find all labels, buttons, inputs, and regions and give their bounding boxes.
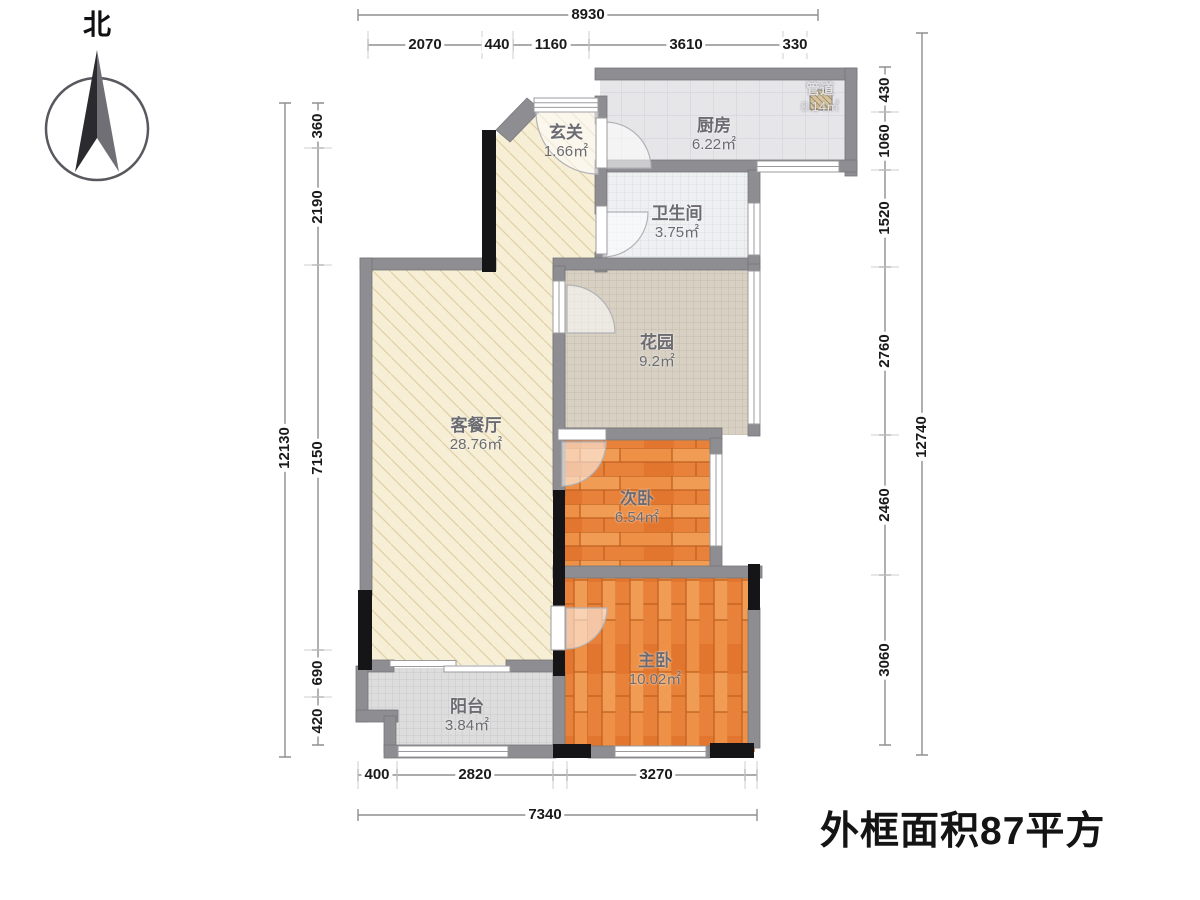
duct-name: 管道 (801, 81, 839, 99)
garden-area: 9.2㎡ (639, 353, 675, 372)
second-bedroom-area: 6.54㎡ (615, 509, 659, 528)
floor-plan-page: 北 玄关 1.66㎡ 厨房 6.22㎡ 管道 0.14㎡ 卫生间 3.75㎡ 花… (0, 0, 1200, 900)
room-label-entry: 玄关 1.66㎡ (544, 122, 588, 162)
dim-right-seg-3: 1520 (877, 198, 893, 237)
bathroom-window (748, 203, 760, 255)
bathroom-name: 卫生间 (652, 203, 703, 224)
dim-top-seg-5: 330 (779, 37, 810, 53)
room-label-master-bedroom: 主卧 10.02㎡ (629, 650, 682, 690)
outer-area-note: 外框面积87平方 (820, 800, 1105, 856)
dim-bottom-seg-3: 3270 (636, 767, 675, 783)
kitchen-area: 6.22㎡ (692, 136, 736, 155)
dim-top-seg-2: 440 (481, 37, 512, 53)
bathroom-area: 3.75㎡ (652, 224, 703, 243)
entry-name: 玄关 (544, 122, 588, 143)
second-bedroom-door-panel (558, 429, 606, 440)
dim-top-seg-3: 1160 (532, 37, 571, 53)
balcony-area: 3.84㎡ (445, 717, 489, 736)
garden-name: 花园 (639, 332, 675, 353)
living-dining-area: 28.76㎡ (450, 436, 503, 455)
dim-left-seg-3: 7150 (310, 438, 326, 477)
master-bedroom-window (615, 746, 706, 757)
dim-right-seg-1: 430 (877, 74, 893, 105)
dim-right-seg-5: 2460 (877, 485, 893, 524)
compass-north-label: 北 (83, 3, 111, 43)
room-label-living-dining: 客餐厅 28.76㎡ (450, 415, 503, 455)
dim-left-total: 12130 (277, 424, 293, 472)
dim-right-seg-4: 2760 (877, 331, 893, 370)
dim-left-seg-4: 690 (310, 657, 326, 688)
dim-bottom-seg-2: 2820 (455, 767, 494, 783)
second-bedroom-name: 次卧 (615, 488, 659, 509)
bathroom-door-panel (596, 206, 607, 254)
second-bedroom-window (710, 454, 722, 546)
kitchen-name: 厨房 (692, 115, 736, 136)
kitchen-door-panel (596, 118, 607, 168)
dim-right-total: 12740 (914, 413, 930, 461)
compass (46, 50, 148, 180)
duct-area: 0.14㎡ (801, 99, 839, 115)
living-dining-name: 客餐厅 (450, 415, 503, 436)
dim-top-total: 8930 (568, 7, 607, 23)
dim-left-seg-5: 420 (310, 705, 326, 736)
dim-top-seg-1: 2070 (405, 37, 444, 53)
master-bedroom-name: 主卧 (629, 650, 682, 671)
garden-left-window (553, 281, 565, 333)
balcony-name: 阳台 (445, 696, 489, 717)
floor-plan-drawing (0, 0, 1200, 900)
balcony-window (398, 746, 508, 757)
room-label-kitchen: 厨房 6.22㎡ (692, 115, 736, 155)
room-label-bathroom: 卫生间 3.75㎡ (652, 203, 703, 243)
master-bedroom-area: 10.02㎡ (629, 671, 682, 690)
entry-window (534, 98, 598, 112)
dim-bottom-total: 7340 (525, 807, 564, 823)
room-label-second-bedroom: 次卧 6.54㎡ (615, 488, 659, 528)
master-bedroom-door-panel (551, 606, 565, 650)
room-label-duct: 管道 0.14㎡ (801, 81, 839, 115)
kitchen-window (757, 161, 839, 172)
compass-needle-right (97, 50, 119, 172)
room-label-garden: 花园 9.2㎡ (639, 332, 675, 372)
dim-top-seg-4: 3610 (666, 37, 705, 53)
compass-needle-left (75, 50, 97, 172)
room-label-balcony: 阳台 3.84㎡ (445, 696, 489, 736)
dim-right-seg-6: 3060 (877, 640, 893, 679)
dim-right-seg-2: 1060 (877, 121, 893, 160)
dim-left-seg-1: 360 (310, 110, 326, 141)
dim-bottom-seg-1: 400 (361, 767, 392, 783)
entry-area: 1.66㎡ (544, 143, 588, 162)
dim-left-seg-2: 2190 (310, 187, 326, 226)
garden-right-window (748, 271, 760, 424)
